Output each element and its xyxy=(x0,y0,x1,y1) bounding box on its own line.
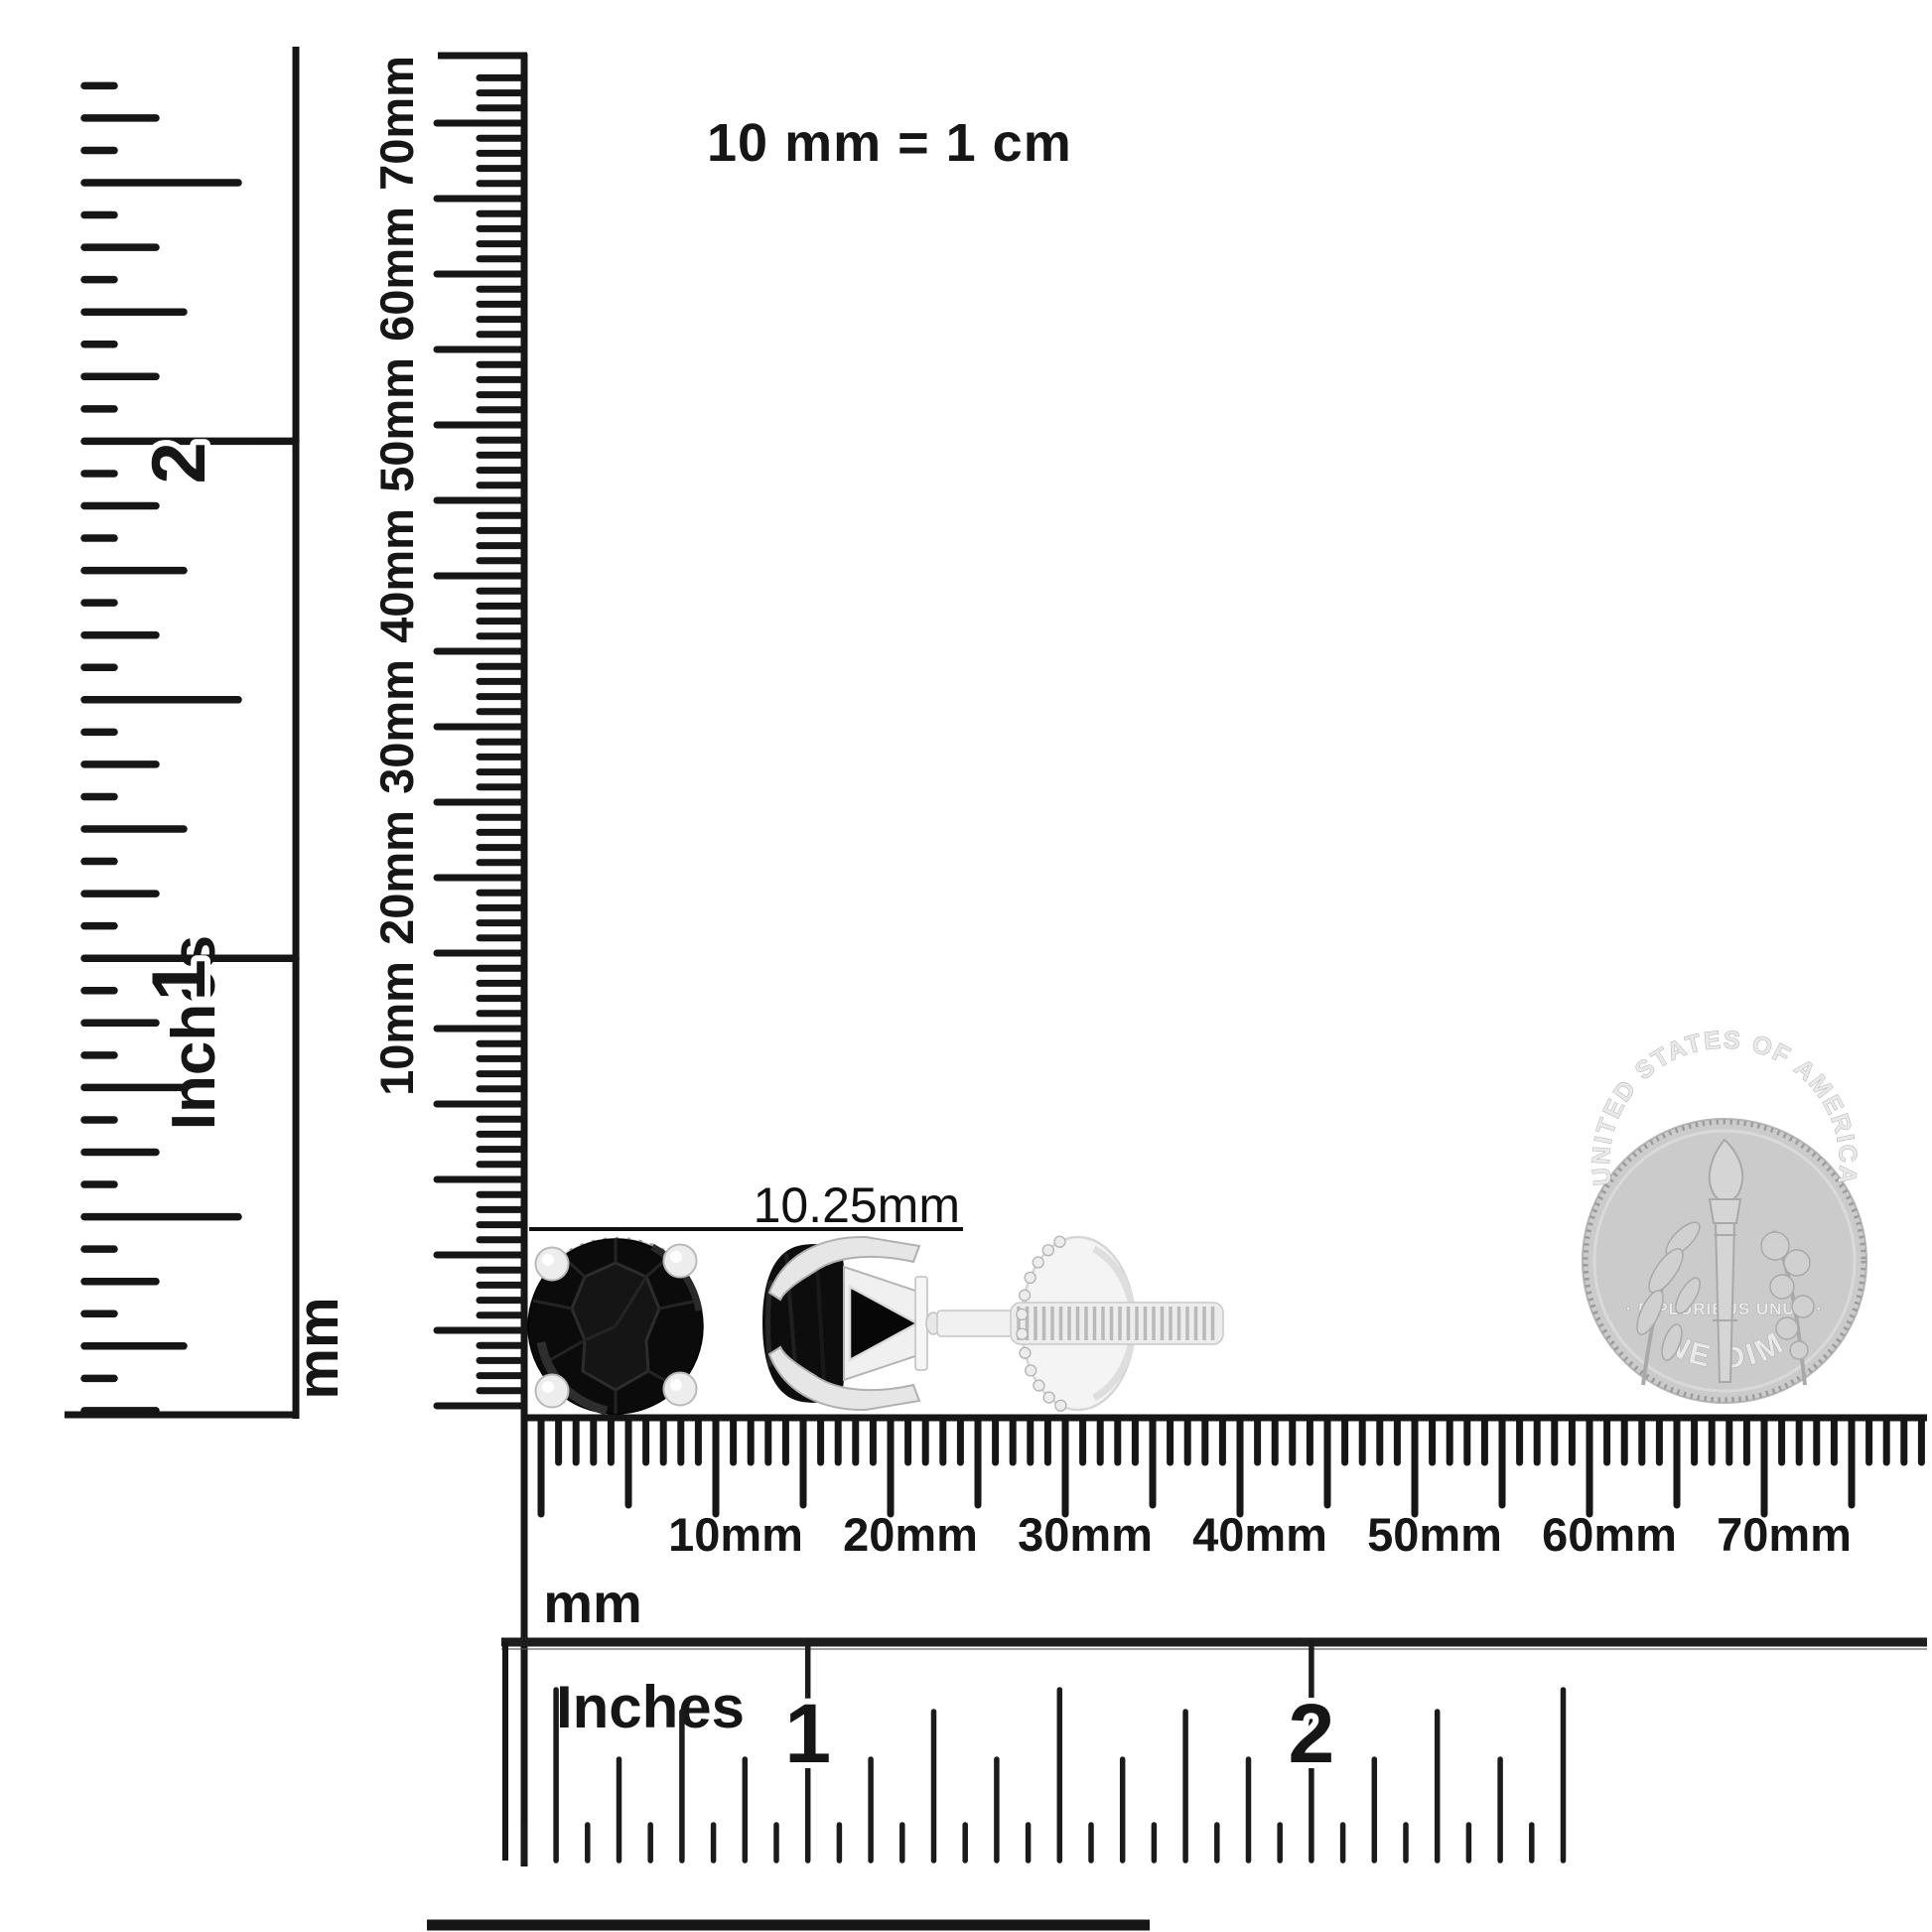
bottom-mm-ruler: mm 10mm20mm30mm40mm50mm60mm70mm xyxy=(521,1418,1927,1634)
bottom-inch-ruler-unit: Inches xyxy=(556,1674,745,1740)
vertical-mm-ruler: mm 10mm20mm30mm40mm50mm60mm70mm xyxy=(286,54,527,1866)
scene: 10 mm = 1 cm Inches 12 mm 10mm20mm30mm40… xyxy=(0,0,1932,1932)
inch-number: 2 xyxy=(1289,1687,1335,1780)
left-inch-ruler: Inches 12 xyxy=(65,47,299,1419)
tick-label: 40mm xyxy=(1192,1508,1327,1561)
scale-note: 10 mm = 1 cm xyxy=(707,113,1072,173)
tick-label: 50mm xyxy=(370,357,423,492)
tick-label: 60mm xyxy=(1542,1508,1677,1561)
vertical-mm-ruler-unit: mm xyxy=(286,1297,350,1399)
earring-post xyxy=(937,1311,1013,1336)
scallop-bead xyxy=(1055,1400,1066,1411)
tick-label: 10mm xyxy=(370,961,423,1096)
tick-label: 70mm xyxy=(1717,1508,1852,1561)
tick-label: 10mm xyxy=(668,1508,803,1561)
bottom-mm-ruler-unit: mm xyxy=(543,1572,642,1634)
earring-side-view xyxy=(762,1236,1223,1411)
tick-label: 30mm xyxy=(370,659,423,794)
scallop-bead xyxy=(1020,1347,1031,1358)
tick-label: 50mm xyxy=(1367,1508,1502,1561)
scallop-bead xyxy=(1033,1257,1043,1268)
scallop-bead xyxy=(1025,1272,1035,1283)
earring-front-view xyxy=(528,1239,703,1414)
basket-rim xyxy=(915,1277,927,1370)
scallop-bead xyxy=(1017,1328,1028,1339)
scallop-bead xyxy=(1034,1380,1044,1391)
scallop-bead xyxy=(1043,1392,1054,1403)
tick-label: 70mm xyxy=(370,56,423,191)
scallop-bead xyxy=(1054,1236,1065,1247)
tick-label: 20mm xyxy=(843,1508,978,1561)
product-measurement-image: 10 mm = 1 cm Inches 12 mm 10mm20mm30mm40… xyxy=(0,0,1932,1932)
scallop-bead xyxy=(1026,1365,1036,1376)
scallop-bead xyxy=(1042,1245,1053,1256)
tick-label: 60mm xyxy=(370,207,423,342)
threaded-post xyxy=(1011,1303,1223,1344)
inch-number: 1 xyxy=(784,1687,831,1780)
measurement-annotation: 10.25mm xyxy=(529,1177,963,1233)
inch-number: 2 xyxy=(137,442,221,483)
scallop-bead xyxy=(1020,1290,1031,1301)
measurement-label: 10.25mm xyxy=(754,1177,960,1233)
tick-label: 30mm xyxy=(1018,1508,1153,1561)
tick-label: 20mm xyxy=(370,810,423,945)
inch-number: 1 xyxy=(137,959,221,1001)
coin-bottom-text: ONE DIME xyxy=(0,0,1792,1376)
scallop-bead xyxy=(1017,1309,1028,1319)
bottom-inch-ruler: Inches 12 xyxy=(427,1642,1927,1925)
tick-label: 40mm xyxy=(370,508,423,643)
